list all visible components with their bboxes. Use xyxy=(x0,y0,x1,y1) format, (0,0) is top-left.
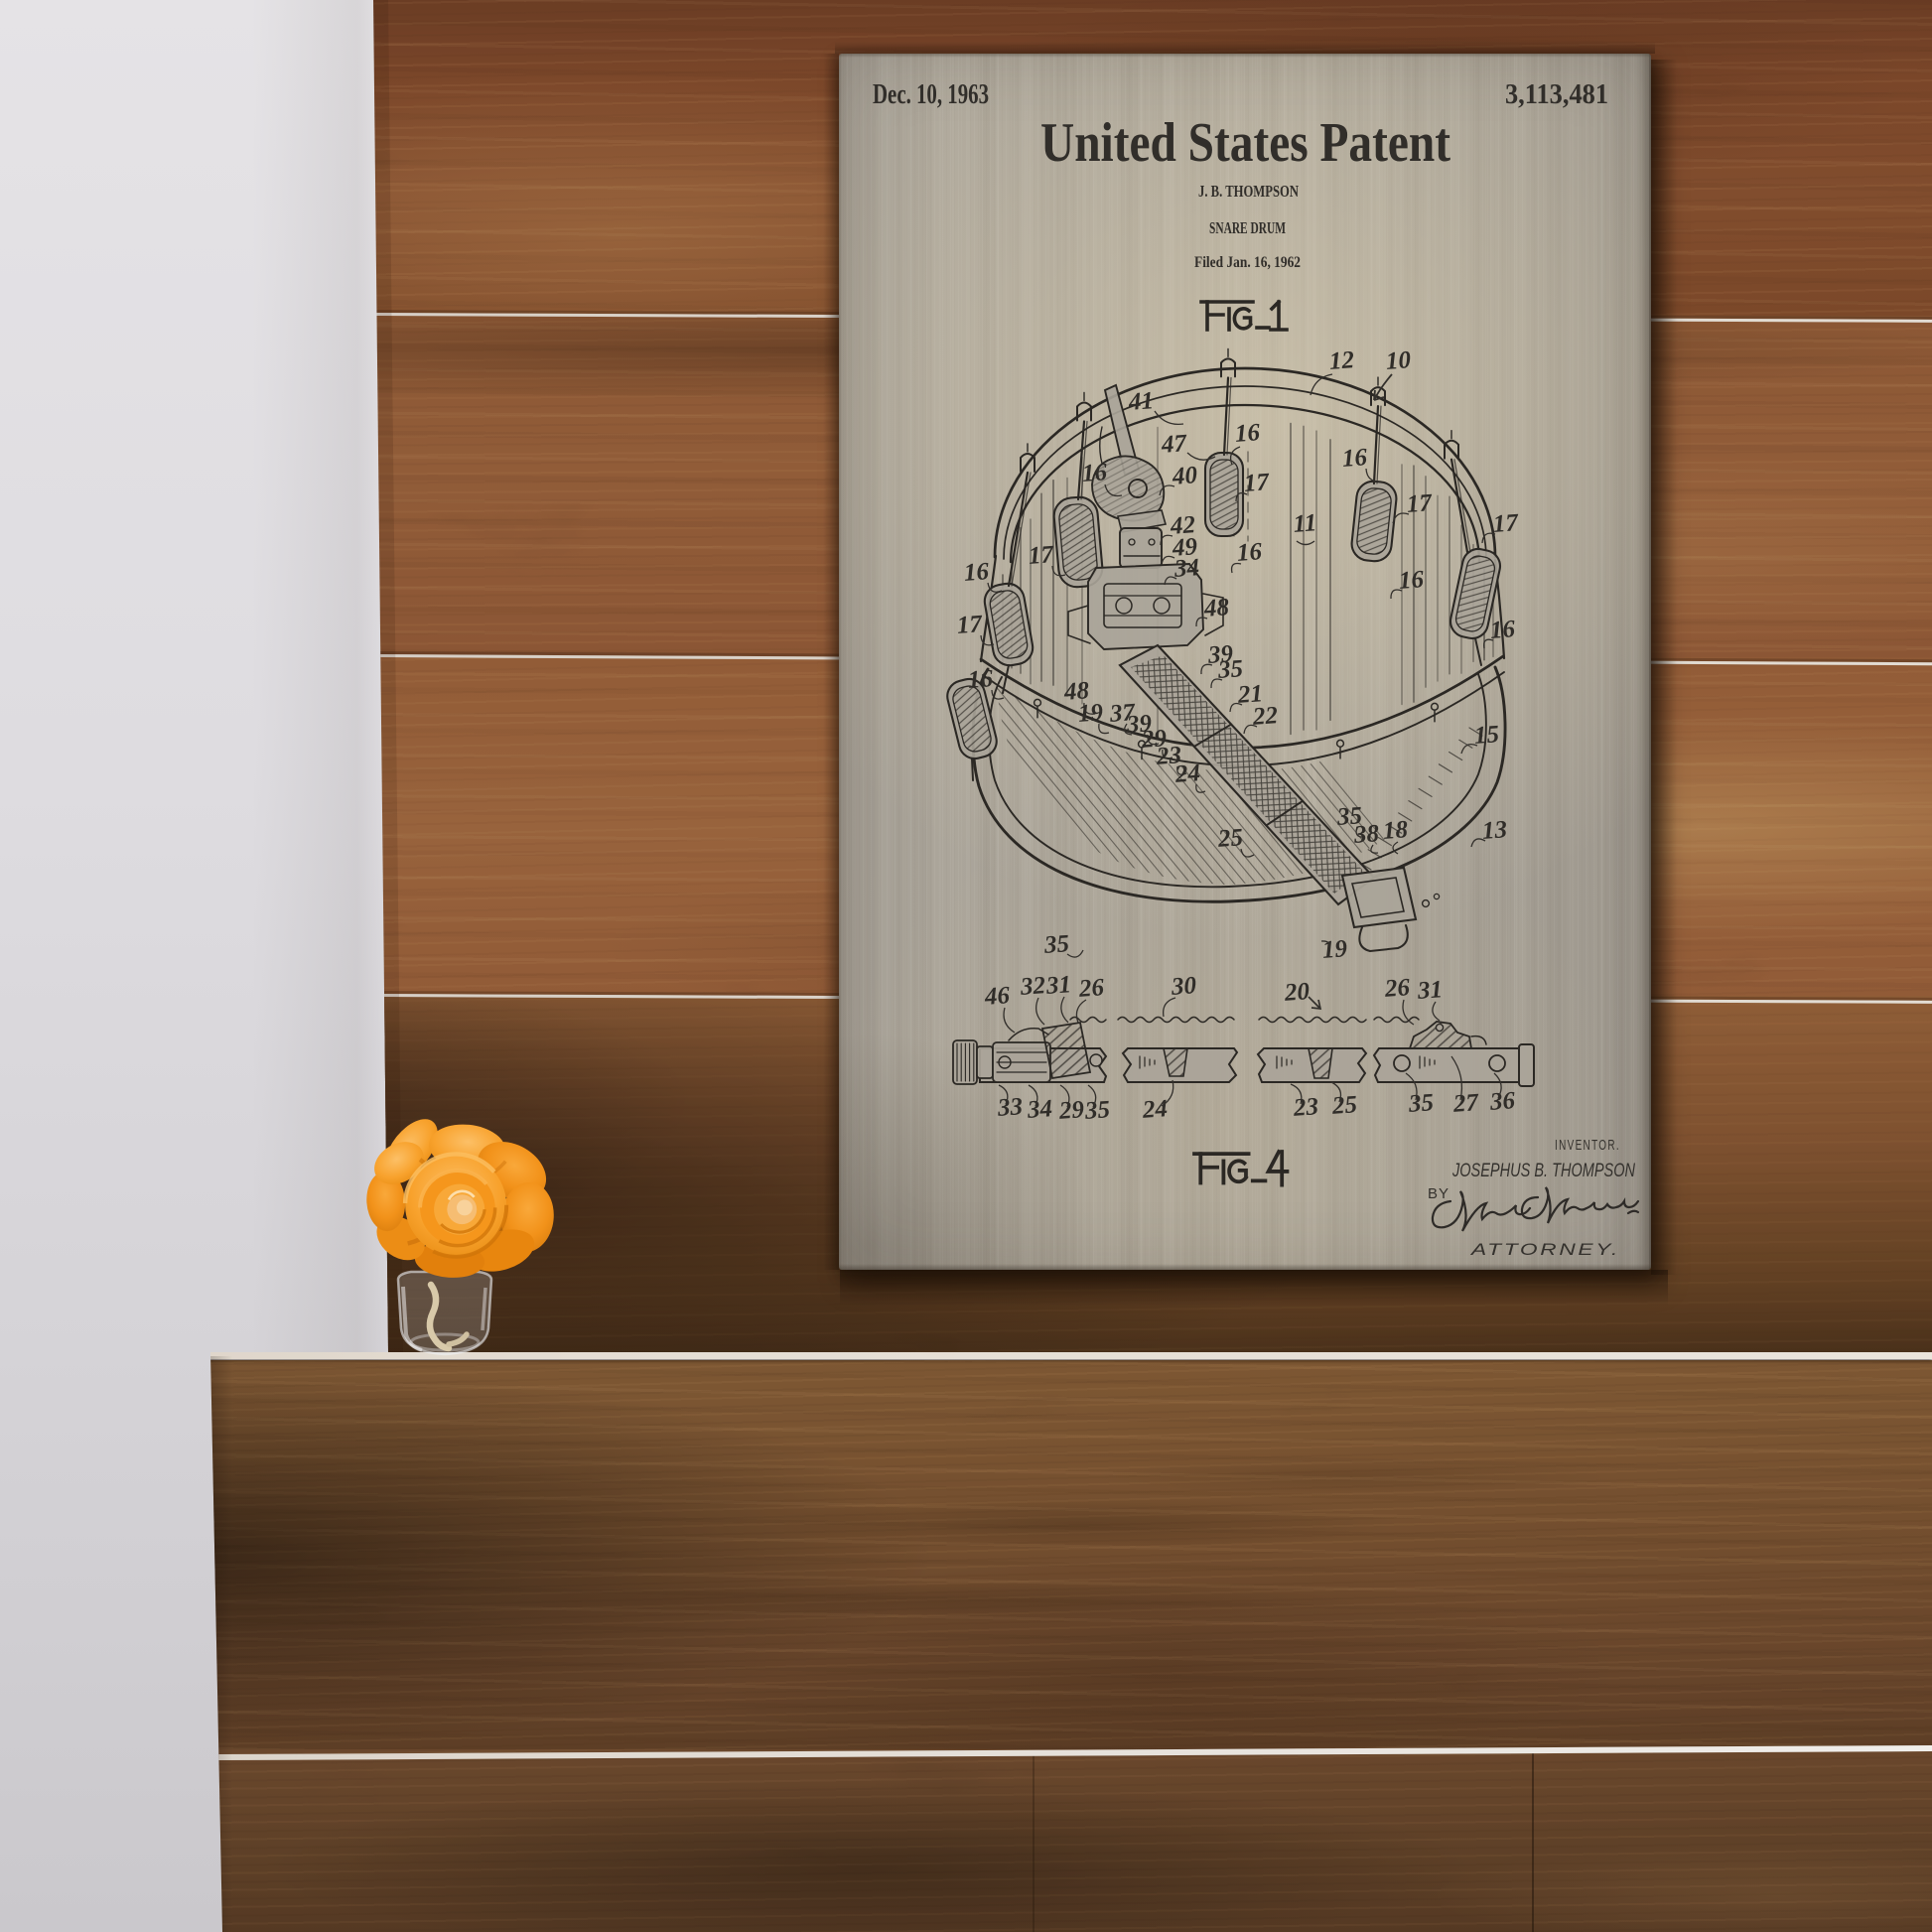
svg-text:36: 36 xyxy=(1488,1087,1516,1116)
svg-text:3,113,481: 3,113,481 xyxy=(1505,78,1608,110)
svg-text:Dec. 10, 1963: Dec. 10, 1963 xyxy=(873,78,989,110)
svg-text:16: 16 xyxy=(1398,566,1425,595)
svg-text:11: 11 xyxy=(1293,509,1317,538)
svg-text:27: 27 xyxy=(1451,1089,1480,1118)
svg-text:35: 35 xyxy=(1407,1089,1435,1118)
svg-text:17: 17 xyxy=(956,611,984,639)
svg-text:17: 17 xyxy=(1406,489,1434,518)
svg-text:16: 16 xyxy=(1341,444,1368,473)
svg-text:23: 23 xyxy=(1292,1093,1319,1122)
svg-text:34: 34 xyxy=(1173,554,1200,583)
svg-text:19: 19 xyxy=(1077,699,1104,728)
svg-text:18: 18 xyxy=(1382,816,1409,845)
svg-text:Filed Jan. 16, 1962: Filed Jan. 16, 1962 xyxy=(1194,254,1301,271)
svg-text:34: 34 xyxy=(1026,1095,1053,1124)
svg-text:46: 46 xyxy=(983,982,1011,1011)
svg-text:16: 16 xyxy=(1234,419,1261,448)
svg-text:32: 32 xyxy=(1019,972,1046,1001)
svg-text:47: 47 xyxy=(1160,430,1188,459)
svg-text:10: 10 xyxy=(1385,346,1412,375)
svg-text:29: 29 xyxy=(1057,1096,1085,1125)
svg-text:17: 17 xyxy=(1492,509,1520,538)
svg-text:35: 35 xyxy=(1042,930,1070,959)
svg-text:41: 41 xyxy=(1127,387,1155,416)
svg-text:JOSEPHUS B. THOMPSON: JOSEPHUS B. THOMPSON xyxy=(1451,1161,1635,1181)
svg-text:12: 12 xyxy=(1328,346,1355,375)
svg-text:SNARE DRUM: SNARE DRUM xyxy=(1209,218,1286,237)
svg-text:17: 17 xyxy=(1028,541,1055,570)
svg-text:20: 20 xyxy=(1283,978,1311,1007)
svg-text:16: 16 xyxy=(1489,616,1516,644)
svg-text:16: 16 xyxy=(1081,459,1108,487)
svg-text:BY: BY xyxy=(1428,1185,1449,1202)
svg-text:26: 26 xyxy=(1383,974,1411,1003)
svg-text:25: 25 xyxy=(1216,824,1244,853)
svg-text:17: 17 xyxy=(1243,469,1271,497)
svg-text:26: 26 xyxy=(1077,974,1105,1003)
svg-text:38: 38 xyxy=(1352,820,1380,849)
svg-text:J. B. THOMPSON: J. B. THOMPSON xyxy=(1198,182,1300,201)
svg-text:40: 40 xyxy=(1171,462,1198,490)
svg-text:United States Patent: United States Patent xyxy=(1040,112,1450,174)
svg-text:35: 35 xyxy=(1083,1096,1111,1125)
svg-text:31: 31 xyxy=(1044,971,1072,1000)
svg-text:16: 16 xyxy=(967,665,994,694)
svg-text:25: 25 xyxy=(1330,1091,1358,1120)
svg-text:24: 24 xyxy=(1141,1095,1169,1124)
svg-text:30: 30 xyxy=(1170,972,1197,1001)
svg-text:16: 16 xyxy=(963,558,990,587)
svg-text:31: 31 xyxy=(1416,976,1444,1005)
svg-text:19: 19 xyxy=(1321,935,1348,964)
svg-text:24: 24 xyxy=(1173,759,1201,788)
svg-text:ATTORNEY.: ATTORNEY. xyxy=(1470,1240,1620,1259)
svg-text:16: 16 xyxy=(1236,538,1263,567)
svg-text:INVENTOR.: INVENTOR. xyxy=(1555,1137,1620,1154)
svg-text:33: 33 xyxy=(996,1093,1024,1122)
